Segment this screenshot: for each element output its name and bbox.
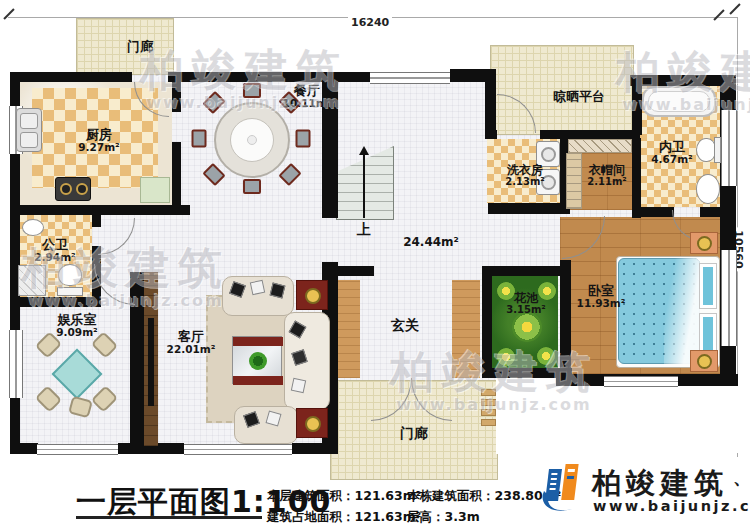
window: [370, 72, 450, 84]
wall: [485, 81, 496, 132]
coffee-table: [232, 336, 282, 384]
washer-drum: [541, 147, 556, 162]
exterior: [556, 386, 740, 453]
room-area: 4.67m²: [640, 154, 704, 165]
window: [37, 444, 118, 455]
bed-pillow: [700, 264, 716, 308]
room-label-public-bath: 公卫 2.94m²: [24, 238, 86, 263]
window: [184, 444, 292, 455]
room-name: 娱乐室: [42, 313, 112, 327]
sofa: [234, 406, 298, 444]
room-name: 衣帽间: [574, 164, 640, 177]
shower: [18, 265, 46, 296]
stairs-arrow: [363, 152, 365, 218]
wall: [10, 72, 132, 82]
room-name: 玄关: [375, 318, 435, 333]
room-label-drying-platform: 晾晒平台: [536, 90, 622, 104]
porch-step: [481, 399, 496, 406]
sink-basin: [20, 132, 38, 148]
room-label-dining: 餐厅 10.11m²: [276, 84, 338, 109]
dining-chair: [243, 83, 261, 98]
room-label-entertainment: 娱乐室 9.09m²: [42, 313, 112, 338]
washbasin: [696, 174, 720, 204]
window: [9, 330, 23, 398]
stairs-up-label: 上: [350, 222, 378, 237]
lamp: [305, 288, 321, 304]
bed-duvet-fold: [664, 258, 700, 364]
dining-chair: [296, 130, 311, 148]
wall: [338, 266, 374, 276]
room-label-cloakroom: 衣帽间 2.11m²: [574, 164, 640, 187]
foyer-strip-right: [452, 280, 480, 378]
wall: [630, 75, 732, 86]
wall: [482, 266, 492, 378]
room-name: 餐厅: [276, 84, 338, 98]
hall-area-label: 24.44m²: [396, 236, 466, 249]
room-label-foyer: 玄关: [375, 318, 435, 333]
sofa: [222, 276, 294, 316]
porch-step: [481, 389, 496, 396]
room-name: 门廊: [384, 426, 444, 441]
room-area: 9.27m²: [64, 142, 134, 153]
dimension-tick: [713, 9, 724, 20]
room-area: 22.01m²: [156, 344, 226, 355]
wall: [488, 203, 570, 214]
title-underline: [76, 516, 262, 519]
wall: [540, 130, 640, 139]
room-name: 内卫: [640, 140, 704, 154]
room-area: 24.44m²: [396, 236, 466, 249]
side-table: [296, 280, 328, 310]
room-label-porch-bottom: 门廊: [384, 426, 444, 441]
room-label-laundry: 洗衣房 2.13m²: [492, 164, 558, 187]
dining-chair: [243, 179, 261, 194]
flower: [512, 312, 542, 342]
stat-footprint-area: 建筑占地面积：121.63m²: [267, 509, 421, 526]
window: [721, 250, 737, 346]
nightstand: [690, 350, 718, 372]
room-name: 客厅: [156, 330, 226, 344]
room-area: 3.15m²: [494, 305, 558, 316]
wall: [172, 142, 181, 205]
room-name: 花池: [494, 292, 558, 305]
wall: [482, 266, 568, 276]
dining-chair: [192, 130, 207, 148]
room-label-living: 客厅 22.01m²: [156, 330, 226, 355]
dimension-tick: [729, 3, 740, 14]
floor-plan: 16240 10560: [0, 0, 750, 529]
company-logo-icon: [536, 461, 588, 515]
toilet-tank: [57, 287, 83, 296]
wardrobe-rack: [568, 139, 632, 153]
lamp: [697, 354, 712, 369]
plant: [249, 352, 267, 370]
room-name: 厨房: [64, 128, 134, 142]
wall: [10, 297, 101, 307]
porch-step: [481, 409, 496, 416]
room-area: 2.13m²: [492, 177, 558, 188]
stairs-arrow-head: [359, 146, 369, 155]
logo-tick: 、: [733, 466, 750, 490]
room-name: 门廊: [110, 40, 170, 54]
room-area: 2.11m²: [574, 177, 640, 188]
nightstand: [690, 232, 718, 254]
window: [721, 110, 737, 186]
room-label-bedroom: 卧室 11.93m²: [566, 284, 636, 309]
table-band: [233, 376, 283, 385]
room-area: 9.09m²: [42, 327, 112, 338]
room-label-master-bath: 内卫 4.67m²: [640, 140, 704, 165]
burner: [76, 183, 88, 195]
fridge: [140, 177, 170, 203]
foyer-strip-left: [338, 280, 360, 378]
wall: [292, 443, 338, 454]
wall: [485, 130, 497, 139]
stove: [55, 177, 91, 201]
room-name: 晾晒平台: [536, 90, 622, 104]
stat-floor-area: 本层建筑面积：121.63m²: [267, 488, 421, 505]
room-area: 11.93m²: [566, 298, 636, 309]
exterior: [496, 378, 558, 454]
wall: [632, 85, 642, 135]
wall: [700, 207, 732, 217]
side-table: [296, 408, 328, 438]
room-area: 2.94m²: [24, 252, 86, 263]
wall: [172, 82, 181, 112]
sink-basin: [20, 113, 38, 129]
stat-floor-height: 层高：3.3m: [407, 509, 480, 526]
room-name: 公卫: [24, 238, 86, 252]
tv: [148, 318, 154, 406]
flower: [537, 347, 555, 365]
dimension-top-label: 16240: [348, 16, 392, 29]
room-label-porch-top: 门廊: [110, 40, 170, 54]
bathtub-inner: [648, 91, 710, 112]
lamp: [697, 236, 712, 251]
window: [604, 376, 678, 387]
room-label-flower-bed: 花池 3.15m²: [494, 292, 558, 315]
wall: [10, 443, 38, 454]
wall: [168, 72, 372, 82]
lamp: [305, 416, 321, 432]
company-logo-url: www.baijunjz.com: [593, 498, 750, 514]
room-area: 10.11m²: [276, 98, 338, 109]
bathtub: [642, 86, 716, 117]
wall: [560, 260, 571, 378]
sofa: [284, 312, 330, 410]
wall: [10, 205, 190, 215]
room-name: 洗衣房: [492, 164, 558, 177]
burner: [60, 183, 72, 195]
toilet-tank: [714, 137, 721, 163]
washbasin: [22, 219, 44, 236]
dining-table-center: [247, 135, 257, 145]
kitchen-sink: [16, 108, 42, 152]
toilet: [58, 264, 82, 286]
flower: [497, 348, 515, 366]
wall: [636, 207, 674, 217]
table-band: [233, 337, 283, 346]
room-label-kitchen: 厨房 9.27m²: [64, 128, 134, 153]
porch-step: [481, 419, 496, 426]
room-name: 卧室: [566, 284, 636, 298]
